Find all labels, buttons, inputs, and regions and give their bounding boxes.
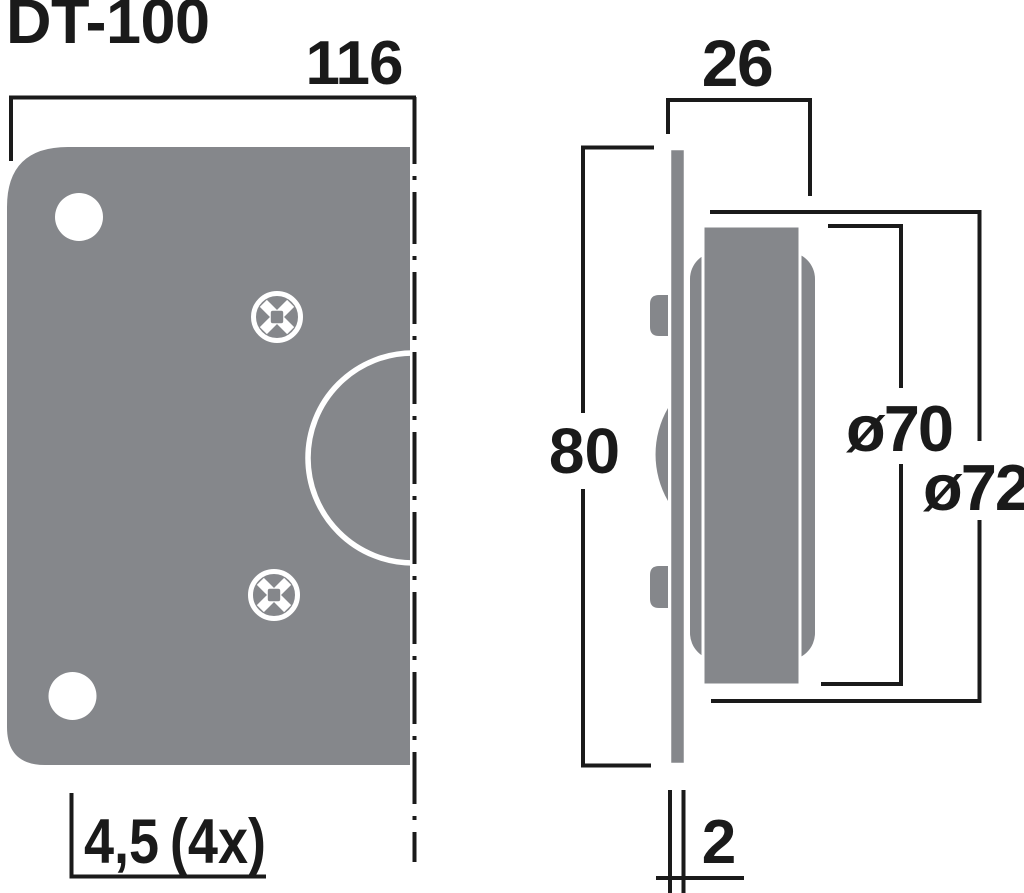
svg-text:2: 2 (702, 808, 736, 877)
svg-text:80: 80 (549, 415, 620, 487)
svg-text:4,5 (4x): 4,5 (4x) (84, 807, 266, 877)
svg-text:DT-100: DT-100 (6, 0, 210, 57)
svg-text:26: 26 (702, 26, 772, 100)
svg-text:116: 116 (305, 29, 402, 98)
svg-text:ø72: ø72 (923, 451, 1024, 524)
